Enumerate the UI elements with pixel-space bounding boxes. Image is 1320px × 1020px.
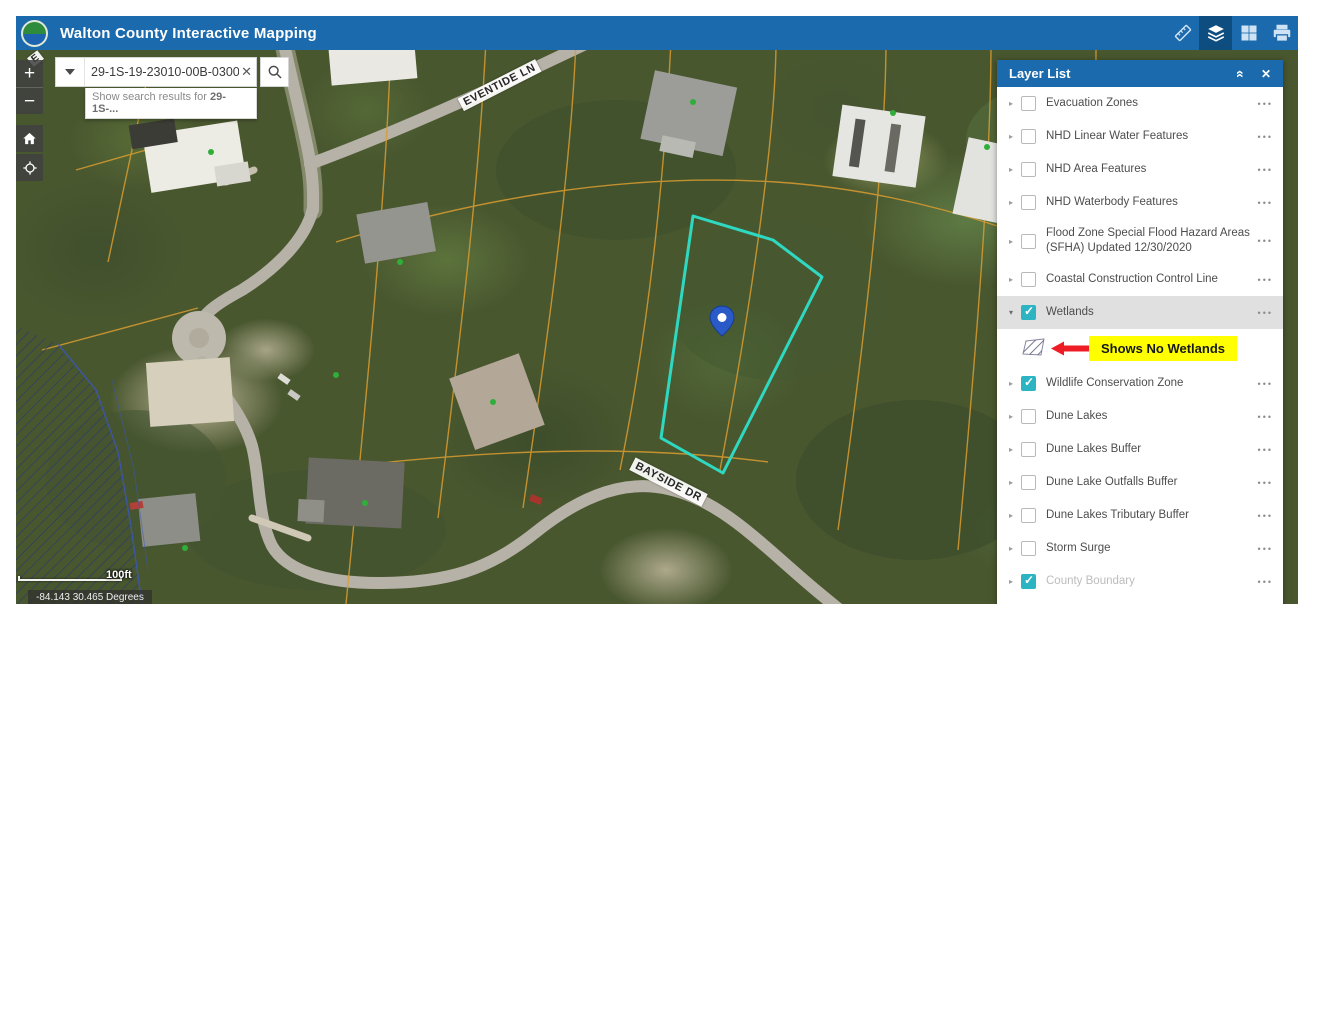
map-canvas[interactable]: EVENTIDE LN BAYSIDE DR E + − ✕ xyxy=(16,50,1298,604)
clear-search-icon[interactable]: ✕ xyxy=(241,64,252,80)
expand-layer-icon[interactable]: ▸ xyxy=(1009,165,1020,174)
zoom-in-button[interactable]: + xyxy=(16,60,43,87)
layer-item-dune-lakes-buffer[interactable]: ▸Dune Lakes Buffer xyxy=(997,433,1283,466)
layer-checkbox[interactable] xyxy=(1021,475,1036,490)
layer-checkbox[interactable] xyxy=(1021,162,1036,177)
layer-menu-icon[interactable] xyxy=(1258,198,1273,208)
zoom-out-button[interactable]: − xyxy=(16,87,43,114)
layer-label: Wildlife Conservation Zone xyxy=(1046,376,1258,391)
collapse-panel-icon[interactable]: « xyxy=(1234,70,1248,78)
chevron-down-icon xyxy=(65,69,75,75)
layer-item-flood-zone-special-flood-hazard-areas-sf[interactable]: ▸Flood Zone Special Flood Hazard Areas (… xyxy=(997,219,1283,263)
layer-label: Dune Lake Outfalls Buffer xyxy=(1046,475,1258,490)
app-header: Walton County Interactive Mapping xyxy=(16,16,1298,50)
measure-icon[interactable] xyxy=(1166,16,1199,50)
expand-layer-icon[interactable]: ▸ xyxy=(1009,132,1020,141)
header-toolbar xyxy=(1166,16,1298,50)
layer-label: Storm Surge xyxy=(1046,541,1258,556)
layer-checkbox[interactable] xyxy=(1021,442,1036,457)
layer-item-dune-lake-outfalls-buffer[interactable]: ▸Dune Lake Outfalls Buffer xyxy=(997,466,1283,499)
layer-list-title: Layer List xyxy=(1009,66,1070,81)
layer-checkbox[interactable] xyxy=(1021,96,1036,111)
layer-label: NHD Linear Water Features xyxy=(1046,129,1258,144)
basemap-gallery-icon[interactable] xyxy=(1232,16,1265,50)
layer-label: County Boundary xyxy=(1046,574,1258,589)
layers-icon[interactable] xyxy=(1199,16,1232,50)
scalebar-label: 100ft xyxy=(106,569,132,581)
layer-item-storm-surge[interactable]: ▸Storm Surge xyxy=(997,532,1283,565)
layer-label: Wetlands xyxy=(1046,305,1258,320)
app-title: Walton County Interactive Mapping xyxy=(60,25,317,42)
layer-label: NHD Area Features xyxy=(1046,162,1258,177)
layer-checkbox[interactable] xyxy=(1021,234,1036,249)
layer-item-dune-lakes[interactable]: ▸Dune Lakes xyxy=(997,400,1283,433)
locate-button[interactable] xyxy=(16,154,43,181)
search-source-dropdown[interactable] xyxy=(55,57,85,87)
layer-checkbox[interactable] xyxy=(1021,129,1036,144)
layer-menu-icon[interactable] xyxy=(1258,412,1273,422)
layer-menu-icon[interactable] xyxy=(1258,577,1273,587)
search-suggestion[interactable]: Show search results for 29-1S-... xyxy=(85,88,257,119)
search-icon xyxy=(267,64,283,80)
layer-menu-icon[interactable] xyxy=(1258,99,1273,109)
county-logo-icon xyxy=(21,20,48,47)
print-icon[interactable] xyxy=(1265,16,1298,50)
expand-layer-icon[interactable]: ▸ xyxy=(1009,511,1020,520)
building xyxy=(129,108,251,199)
scalebar: 100ft xyxy=(18,570,168,588)
layer-label: NHD Waterbody Features xyxy=(1046,195,1258,210)
wetlands-legend-swatch xyxy=(1021,337,1047,359)
layer-label: Dune Lakes Tributary Buffer xyxy=(1046,508,1258,523)
layer-menu-icon[interactable] xyxy=(1258,236,1273,246)
layer-label: Flood Zone Special Flood Hazard Areas (S… xyxy=(1046,226,1258,256)
layer-item-nhd-waterbody-features[interactable]: ▸NHD Waterbody Features xyxy=(997,186,1283,219)
layer-item-partial[interactable]: ▸ xyxy=(997,598,1283,604)
layer-checkbox[interactable] xyxy=(1021,376,1036,391)
home-button[interactable] xyxy=(16,125,43,152)
search-button[interactable] xyxy=(260,57,289,87)
app-window: Walton County Interactive Mapping xyxy=(16,16,1298,604)
expand-layer-icon[interactable]: ▸ xyxy=(1009,478,1020,487)
layer-list-body: ▸Evacuation Zones▸NHD Linear Water Featu… xyxy=(997,87,1283,604)
layer-checkbox[interactable] xyxy=(1021,574,1036,589)
expand-layer-icon[interactable]: ▸ xyxy=(1009,237,1020,246)
layer-menu-icon[interactable] xyxy=(1258,478,1273,488)
layer-item-dune-lakes-tributary-buffer[interactable]: ▸Dune Lakes Tributary Buffer xyxy=(997,499,1283,532)
search-box: ✕ xyxy=(85,57,257,87)
layer-checkbox[interactable] xyxy=(1021,305,1036,320)
expand-layer-icon[interactable]: ▸ xyxy=(1009,275,1020,284)
layer-item-nhd-area-features[interactable]: ▸NHD Area Features xyxy=(997,153,1283,186)
expand-layer-icon[interactable]: ▸ xyxy=(1009,544,1020,553)
layer-label: Dune Lakes xyxy=(1046,409,1258,424)
layer-menu-icon[interactable] xyxy=(1258,544,1273,554)
layer-menu-icon[interactable] xyxy=(1258,308,1273,318)
layer-menu-icon[interactable] xyxy=(1258,445,1273,455)
expand-layer-icon[interactable]: ▸ xyxy=(1009,99,1020,108)
annotation-arrow-icon xyxy=(1051,341,1089,356)
layer-checkbox[interactable] xyxy=(1021,272,1036,287)
layer-item-evacuation-zones[interactable]: ▸Evacuation Zones xyxy=(997,87,1283,120)
layer-item-coastal-construction-control-line[interactable]: ▸Coastal Construction Control Line xyxy=(997,263,1283,296)
search-widget: ✕ xyxy=(55,57,289,87)
collapse-layer-icon[interactable]: ▾ xyxy=(1009,308,1020,317)
layer-menu-icon[interactable] xyxy=(1258,165,1273,175)
layer-checkbox[interactable] xyxy=(1021,508,1036,523)
layer-label: Dune Lakes Buffer xyxy=(1046,442,1258,457)
layer-label: Coastal Construction Control Line xyxy=(1046,272,1258,287)
expand-layer-icon[interactable]: ▸ xyxy=(1009,445,1020,454)
expand-layer-icon[interactable]: ▸ xyxy=(1009,412,1020,421)
layer-item-wetlands[interactable]: ▾Wetlands xyxy=(997,296,1283,329)
layer-checkbox[interactable] xyxy=(1021,195,1036,210)
layer-menu-icon[interactable] xyxy=(1258,379,1273,389)
layer-checkbox[interactable] xyxy=(1021,409,1036,424)
expand-layer-icon[interactable]: ▸ xyxy=(1009,198,1020,207)
wetlands-legend-row: Shows No Wetlands xyxy=(997,329,1283,367)
layer-item-wildlife-conservation-zone[interactable]: ▸Wildlife Conservation Zone xyxy=(997,367,1283,400)
search-input[interactable] xyxy=(85,58,239,86)
layer-list-panel: Layer List « ✕ ▸Evacuation Zones▸NHD Lin… xyxy=(997,60,1283,604)
map-controls: + − xyxy=(16,60,43,181)
layer-list-header: Layer List « ✕ xyxy=(997,60,1283,87)
layer-checkbox[interactable] xyxy=(1021,541,1036,556)
layer-item-nhd-linear-water-features[interactable]: ▸NHD Linear Water Features xyxy=(997,120,1283,153)
layer-item-county-boundary[interactable]: ▸County Boundary xyxy=(997,565,1283,598)
expand-layer-icon[interactable]: ▸ xyxy=(1009,379,1020,388)
layer-menu-icon[interactable] xyxy=(1258,275,1273,285)
annotation-label: Shows No Wetlands xyxy=(1089,336,1237,361)
coordinate-readout: -84.143 30.465 Degrees xyxy=(28,590,152,604)
layer-menu-icon[interactable] xyxy=(1258,511,1273,521)
close-panel-icon[interactable]: ✕ xyxy=(1261,68,1271,80)
layer-menu-icon[interactable] xyxy=(1258,132,1273,142)
layer-label: Evacuation Zones xyxy=(1046,96,1258,111)
expand-layer-icon[interactable]: ▸ xyxy=(1009,577,1020,586)
